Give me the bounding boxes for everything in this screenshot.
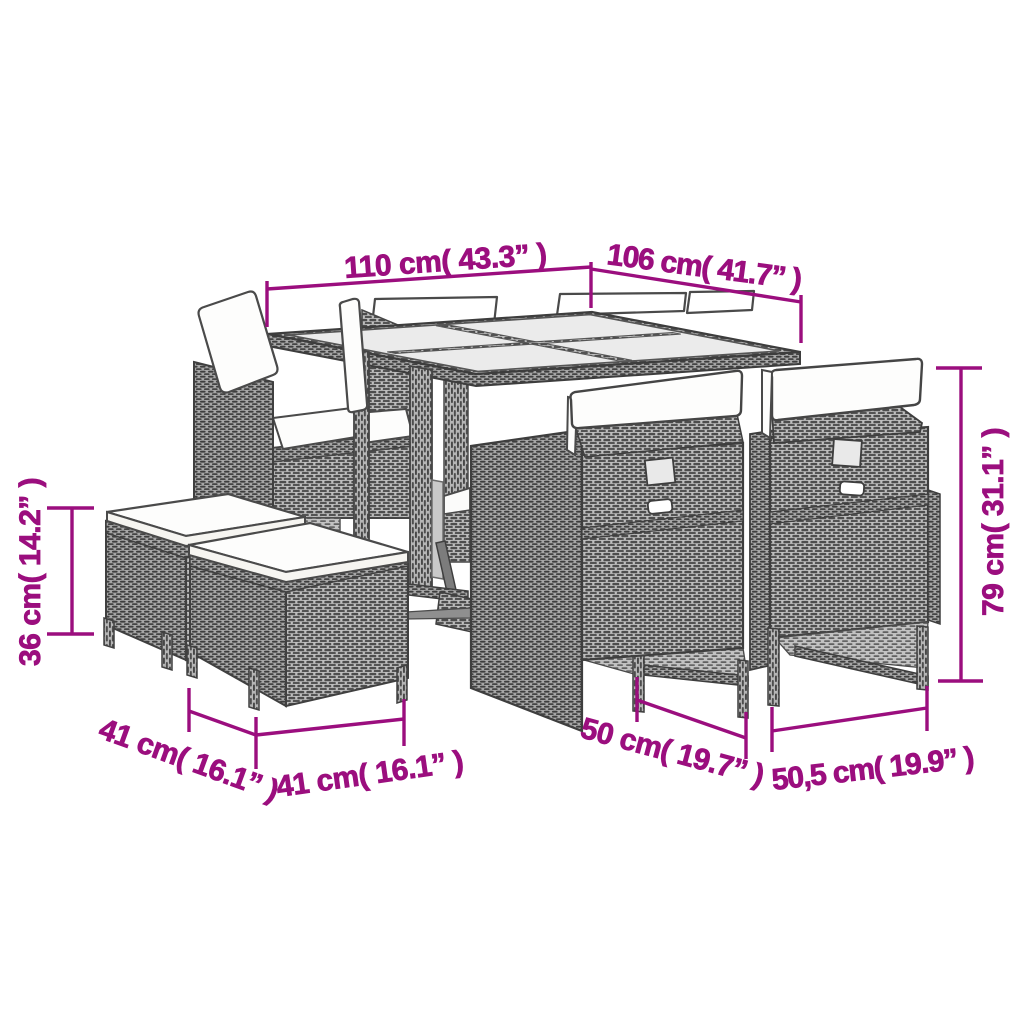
svg-text:79 cm( 31.1” ): 79 cm( 31.1” ) xyxy=(977,428,1010,616)
svg-text:36 cm( 14.2” ): 36 cm( 14.2” ) xyxy=(14,478,47,666)
